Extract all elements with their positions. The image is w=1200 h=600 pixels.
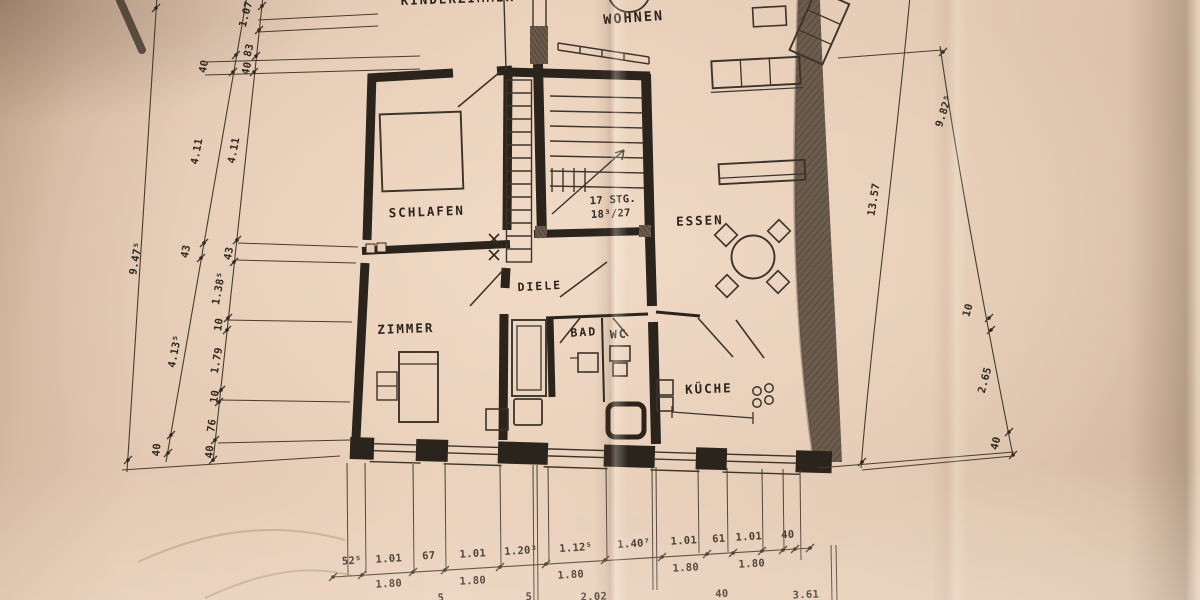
room-label-wc: WC xyxy=(610,327,629,342)
dim-left-detail-6: 10 xyxy=(212,317,226,332)
floorplan-drawing: WOHNEN SCHLAFEN ESSEN DIELE ZIMMER BAD W… xyxy=(0,0,1200,600)
room-label-kueche: KÜCHE xyxy=(685,380,733,397)
bottom-wall xyxy=(350,437,832,475)
dim-right-total: 13.57 xyxy=(866,182,883,217)
dim-left-detail-10: 40 xyxy=(203,445,216,459)
dim-left-main-3: 4.13⁵ xyxy=(166,334,184,369)
stairs-ratio: 18³/27 xyxy=(591,207,631,221)
dim-bottom-mid-2: 1.80 xyxy=(557,568,584,582)
dim-bottom-4: 1.20³ xyxy=(504,544,538,558)
boundary-hatch-band xyxy=(795,0,842,462)
dimension-ticks xyxy=(124,2,1017,581)
kueche-door-2 xyxy=(736,320,764,358)
dim-bottom-8: 61 xyxy=(712,533,726,546)
entry-door xyxy=(458,72,500,107)
paper-fold-curves xyxy=(138,530,352,598)
dim-bottom-3: 1.01 xyxy=(459,547,486,561)
dim-left-total: 9.47⁵ xyxy=(127,241,145,276)
dim-bottom-mid-3: 1.80 xyxy=(672,561,699,575)
bed-schlafen xyxy=(380,112,464,192)
table-zimmer xyxy=(377,372,397,400)
kueche-door-1 xyxy=(698,318,733,357)
dim-bottom-5: 1.12⁵ xyxy=(559,541,593,555)
zimmer-door xyxy=(470,268,505,306)
dim-left-main-4: 40 xyxy=(150,443,163,457)
dim-left-detail-0: 1.07 xyxy=(237,0,255,29)
dim-bottom-2: 67 xyxy=(422,550,436,563)
dim-bottom-9: 1.01 xyxy=(735,530,762,544)
dim-bottom-6: 1.40⁷ xyxy=(617,537,651,551)
floorplan-photo: WOHNEN SCHLAFEN ESSEN DIELE ZIMMER BAD W… xyxy=(0,0,1200,600)
dim-bottom-mid-4: 1.80 xyxy=(738,557,765,571)
dimension-labels: 9.47⁵ 40 4.11 43 4.13⁵ 40 1.07 83 40 4.1… xyxy=(127,0,1003,600)
washer xyxy=(514,399,542,425)
room-label-zimmer: ZIMMER xyxy=(377,320,435,337)
dim-right-outer-3: 40 xyxy=(989,435,1004,451)
stove-burners xyxy=(753,384,773,407)
dining-chairs xyxy=(715,220,791,298)
stairs-count: 17 STG. xyxy=(589,193,636,207)
dim-bottom-low-1: 5 xyxy=(525,591,532,600)
dim-right-outer-1: 10 xyxy=(961,302,976,318)
kitchen-counter xyxy=(672,406,753,424)
dim-left-detail-9: 76 xyxy=(205,418,219,433)
dim-left-detail-4: 43 xyxy=(222,246,236,261)
room-label-clipped-top: KINDERZIMMER xyxy=(400,0,515,8)
walls xyxy=(356,64,700,444)
dim-bottom-7: 1.01 xyxy=(670,534,697,548)
room-label-bad: BAD xyxy=(570,324,597,339)
stair-treads xyxy=(550,96,644,192)
room-label-essen: ESSEN xyxy=(676,212,724,229)
dim-bottom-low-4: 3.61 xyxy=(792,589,819,600)
right-chain-inner xyxy=(861,0,910,468)
dim-left-detail-5: 1.38⁵ xyxy=(210,271,228,306)
wc-toilet xyxy=(610,346,630,376)
bed-zimmer xyxy=(399,352,438,422)
dim-bottom-low-2: 2.02 xyxy=(580,591,607,600)
room-label-diele: DIELE xyxy=(517,278,562,294)
sideboard xyxy=(719,160,806,184)
dim-left-main-2: 43 xyxy=(179,244,193,259)
dim-bottom-1: 1.01 xyxy=(375,552,402,566)
diele-essen-door xyxy=(560,262,607,297)
left-chain-outer xyxy=(127,0,157,472)
dim-left-main-0: 40 xyxy=(197,59,211,74)
room-label-wohnen: WOHNEN xyxy=(603,8,665,28)
room-labels: WOHNEN SCHLAFEN ESSEN DIELE ZIMMER BAD W… xyxy=(377,0,733,397)
witness-lines xyxy=(122,14,1014,600)
dim-right-outer-2: 2.65 xyxy=(976,366,994,395)
dim-bottom-0: 52⁵ xyxy=(342,554,363,567)
wohnen-table xyxy=(753,6,787,27)
dim-bottom-mid-1: 1.80 xyxy=(459,574,486,588)
railing xyxy=(558,43,649,64)
dim-left-main-1: 4.11 xyxy=(189,137,206,165)
sofa-horizontal xyxy=(709,57,802,93)
dim-left-detail-3: 4.11 xyxy=(226,136,243,164)
boundary-stroke-topleft xyxy=(118,0,142,50)
bad-sink xyxy=(570,353,598,372)
dim-bottom-low-3: 40 xyxy=(715,588,729,600)
dim-bottom-low-0: 5 xyxy=(437,592,444,600)
room-label-schlafen: SCHLAFEN xyxy=(388,203,465,221)
dining-table xyxy=(732,236,775,279)
dimension-lines xyxy=(127,0,1013,577)
dim-bottom-10: 40 xyxy=(781,529,795,542)
bathtub xyxy=(512,320,546,396)
wc-shower xyxy=(608,404,644,437)
dim-bottom-mid-0: 1.80 xyxy=(375,577,402,591)
